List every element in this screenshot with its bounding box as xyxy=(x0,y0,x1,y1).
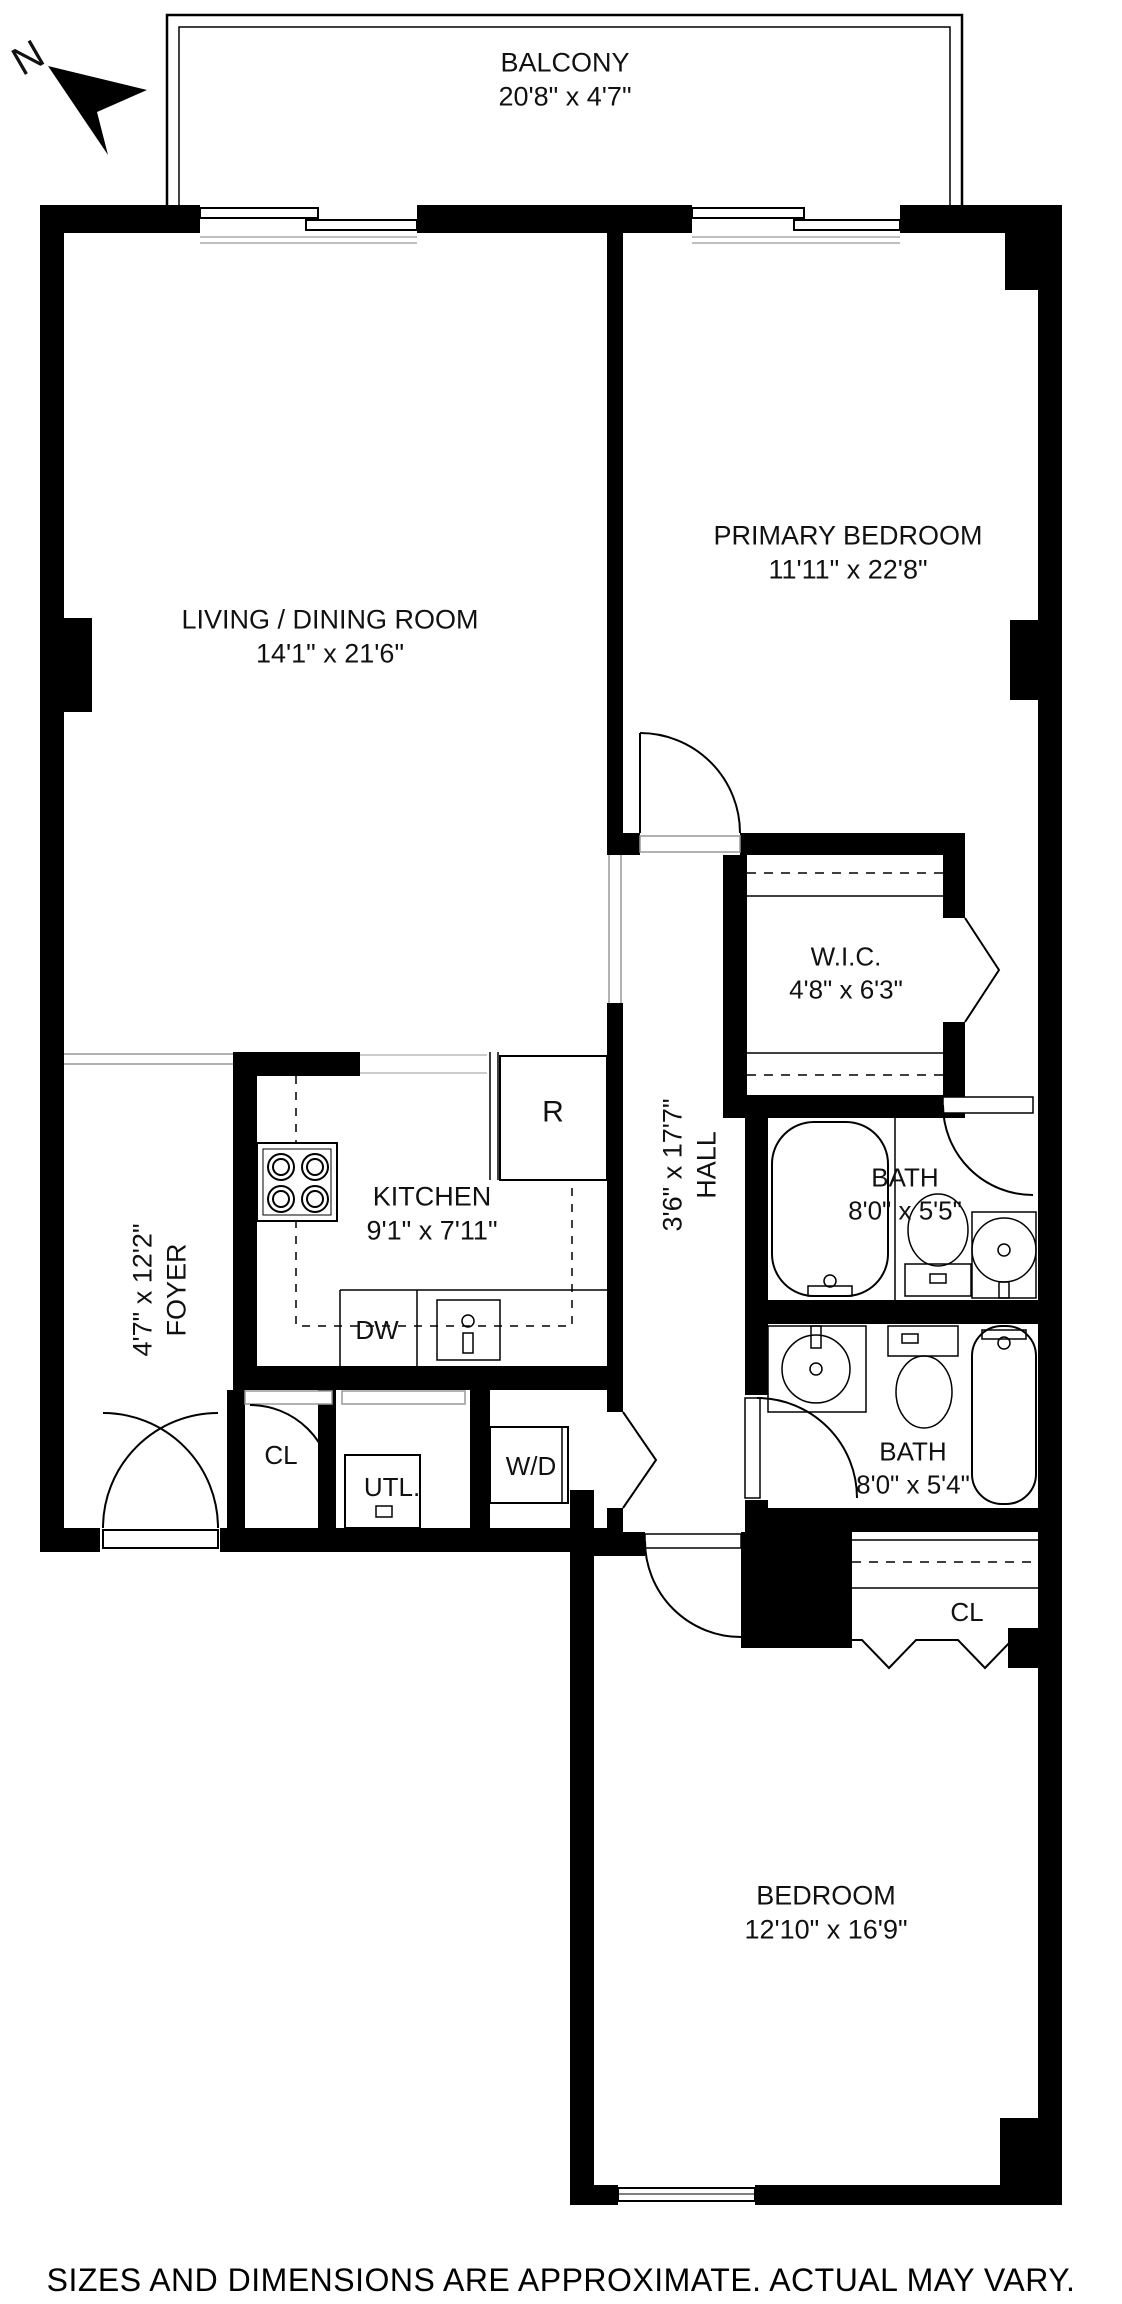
room-name: BALCONY xyxy=(498,46,631,80)
room-name: KITCHEN xyxy=(366,1180,497,1214)
utl-threshold xyxy=(342,1391,465,1404)
room-name: HALL xyxy=(690,1098,724,1231)
disclaimer-text: SIZES AND DIMENSIONS ARE APPROXIMATE. AC… xyxy=(47,2262,1076,2299)
fixture-label-foyer-closet: CL xyxy=(264,1439,297,1472)
sliding-door-living xyxy=(200,208,417,230)
opening-living-foyer xyxy=(64,1054,233,1064)
fixture-label-bedroom-closet: CL xyxy=(950,1596,983,1629)
sliding-door-primary xyxy=(692,208,900,230)
clbed-shelves xyxy=(852,1540,1038,1588)
room-name: PRIMARY BEDROOM xyxy=(713,519,982,553)
room-label-hall: 3'6" x 17'7" HALL xyxy=(656,1098,724,1231)
room-dims: 9'1" x 7'11" xyxy=(366,1214,497,1248)
room-label-bath1: BATH 8'0" x 5'5" xyxy=(848,1162,962,1227)
bath2-tub xyxy=(972,1326,1036,1504)
wic-bifold-door xyxy=(965,918,999,1022)
room-name: BEDROOM xyxy=(744,1879,907,1913)
room-label-bath2: BATH 8'0" x 5'4" xyxy=(856,1436,970,1501)
clbed-bifold-doors xyxy=(852,1640,1038,1668)
door-bedroom xyxy=(645,1534,741,1637)
plan-linework xyxy=(0,0,1122,2304)
room-dims: 3'6" x 17'7" xyxy=(656,1098,690,1231)
bath1-sink xyxy=(972,1212,1036,1298)
kitchen-stove xyxy=(257,1143,337,1221)
room-dims: 11'11" x 22'8" xyxy=(713,553,982,587)
room-name: BATH xyxy=(848,1162,962,1195)
fixture-label-refrigerator: R xyxy=(542,1093,564,1131)
room-dims: 14'1" x 21'6" xyxy=(181,637,478,671)
kitchen-fridge-wall xyxy=(490,1052,498,1180)
room-label-balcony: BALCONY 20'8" x 4'7" xyxy=(498,46,631,114)
bath2-sink xyxy=(768,1326,866,1412)
fixture-label-washer-dryer: W/D xyxy=(506,1450,557,1483)
floor-plan: N BALCONY 20'8" x 4'7" LIVING / DINING R… xyxy=(0,0,1122,2304)
room-label-primary: PRIMARY BEDROOM 11'11" x 22'8" xyxy=(713,519,982,587)
room-name: W.I.C. xyxy=(789,941,903,974)
opening-living-hall xyxy=(609,855,621,1003)
bath2-door xyxy=(745,1398,857,1498)
room-dims: 4'7" x 12'2" xyxy=(126,1223,160,1356)
room-dims: 8'0" x 5'4" xyxy=(856,1468,970,1501)
room-name: FOYER xyxy=(160,1223,194,1356)
opening-living-kitchen xyxy=(360,1055,487,1073)
room-label-foyer: 4'7" x 12'2" FOYER xyxy=(126,1223,194,1356)
room-dims: 4'8" x 6'3" xyxy=(789,973,903,1006)
kitchen-sink xyxy=(437,1300,500,1360)
wd-bifold-door xyxy=(623,1412,656,1508)
room-label-kitchen: KITCHEN 9'1" x 7'11" xyxy=(366,1180,497,1248)
room-dims: 8'0" x 5'5" xyxy=(848,1194,962,1227)
fixture-label-dishwasher: DW xyxy=(355,1314,398,1347)
room-label-wic: W.I.C. 4'8" x 6'3" xyxy=(789,941,903,1006)
room-name: LIVING / DINING ROOM xyxy=(181,603,478,637)
bath2-toilet xyxy=(888,1326,958,1428)
room-label-living: LIVING / DINING ROOM 14'1" x 21'6" xyxy=(181,603,478,671)
entry-door xyxy=(103,1413,218,1548)
room-label-bedroom: BEDROOM 12'10" x 16'9" xyxy=(744,1879,907,1947)
fixture-label-utility: UTL. xyxy=(364,1471,420,1504)
room-dims: 20'8" x 4'7" xyxy=(498,80,631,114)
clfoyer-threshold xyxy=(245,1391,332,1404)
room-name: BATH xyxy=(856,1436,970,1469)
north-arrow-icon xyxy=(48,66,147,155)
room-dims: 12'10" x 16'9" xyxy=(744,1913,907,1947)
door-primary-bedroom xyxy=(640,733,740,852)
